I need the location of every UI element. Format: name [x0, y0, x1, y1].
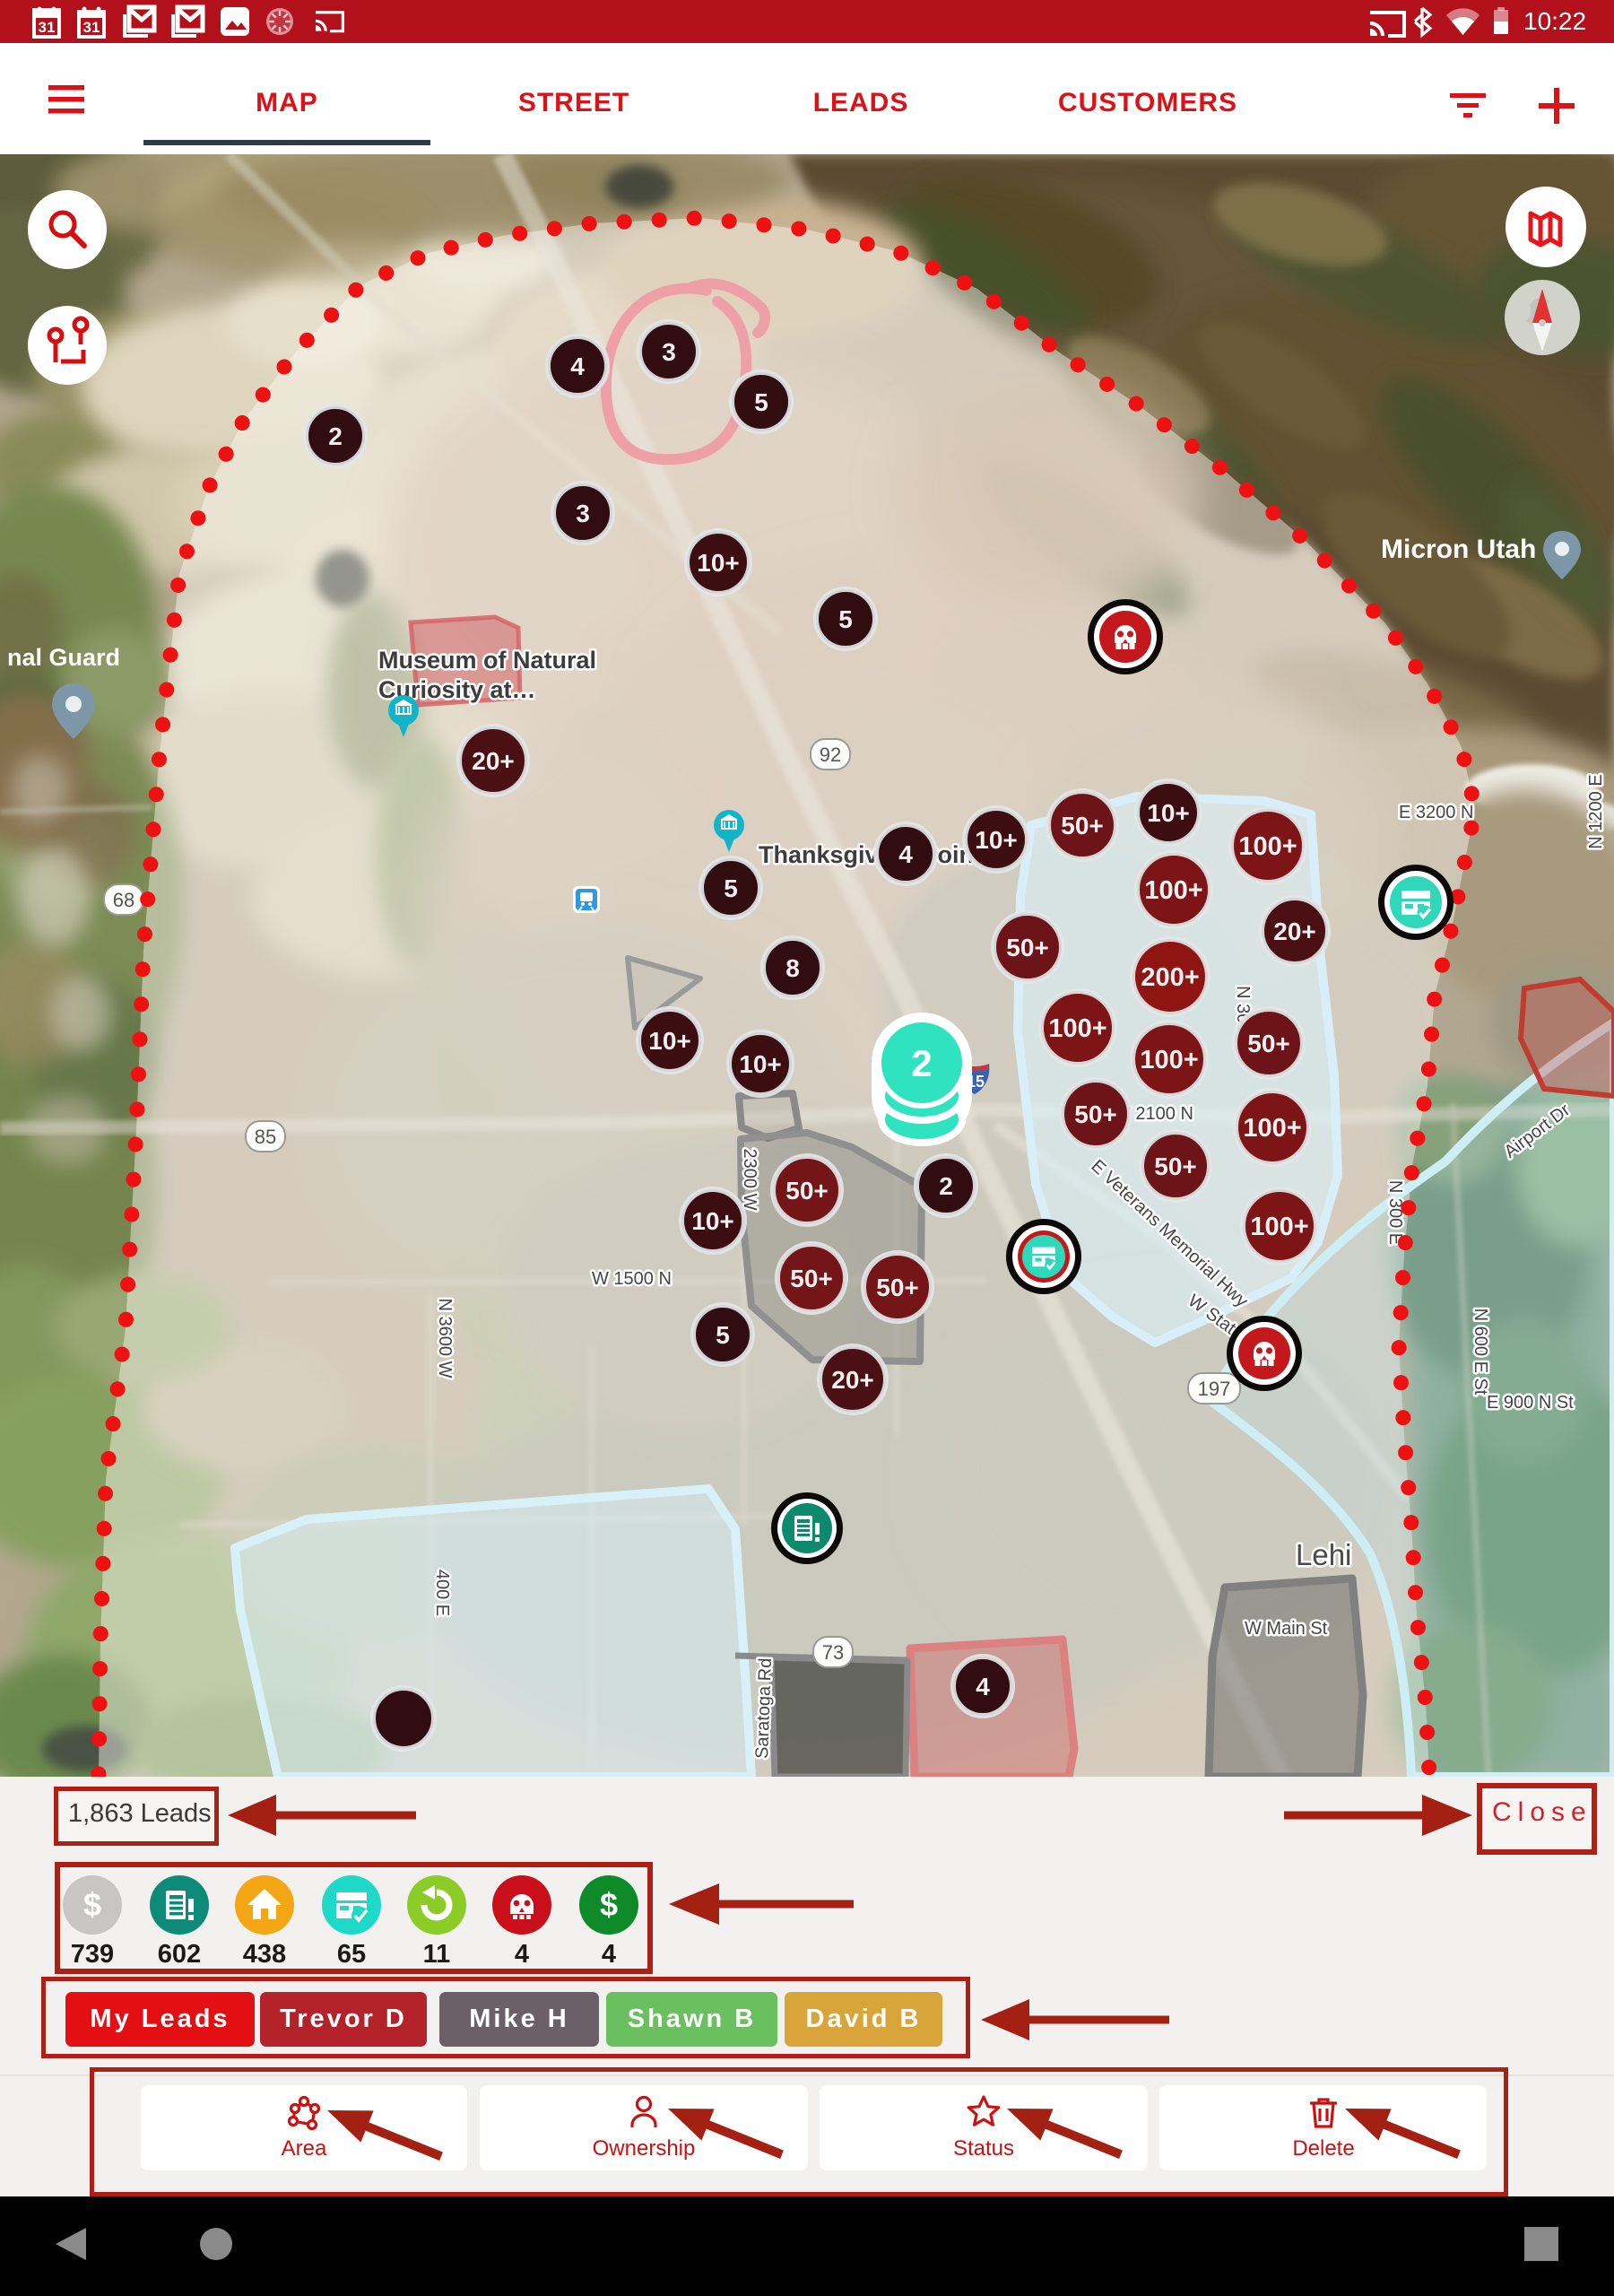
svg-text:68: 68 — [113, 889, 134, 911]
svg-text:20+: 20+ — [472, 747, 515, 775]
svg-text:602: 602 — [158, 1940, 201, 1969]
svg-text:400 E: 400 E — [432, 1570, 452, 1616]
svg-text:31: 31 — [83, 19, 100, 36]
svg-text:50+: 50+ — [1154, 1152, 1197, 1180]
svg-text:5: 5 — [724, 874, 738, 902]
svg-text:Ownership: Ownership — [593, 2136, 696, 2161]
svg-text:5: 5 — [754, 388, 768, 416]
svg-text:50+: 50+ — [876, 1274, 919, 1301]
svg-text:4: 4 — [570, 352, 585, 380]
svg-text:5: 5 — [716, 1321, 730, 1349]
svg-text:N 300 E: N 300 E — [1385, 1180, 1405, 1245]
svg-text:100+: 100+ — [1144, 876, 1202, 905]
svg-text:2300 W: 2300 W — [740, 1149, 759, 1211]
svg-text:N 1200 E: N 1200 E — [1586, 774, 1606, 848]
svg-text:10+: 10+ — [739, 1050, 782, 1078]
svg-text:Saratoga Rd: Saratoga Rd — [752, 1657, 776, 1759]
svg-text:8: 8 — [785, 954, 800, 982]
svg-text:E 900 N St: E 900 N St — [1487, 1393, 1574, 1413]
svg-text:4: 4 — [515, 1940, 529, 1969]
svg-text:65: 65 — [337, 1940, 366, 1969]
svg-text:200+: 200+ — [1141, 963, 1199, 992]
svg-text:Status: Status — [953, 2136, 1014, 2161]
svg-text:10+: 10+ — [697, 549, 740, 577]
svg-text:11: 11 — [423, 1940, 451, 1969]
svg-text:10+: 10+ — [648, 1027, 691, 1055]
svg-text:2: 2 — [911, 1042, 932, 1084]
svg-text:Museum of Natural: Museum of Natural — [378, 647, 596, 674]
svg-text:5: 5 — [838, 605, 853, 633]
svg-text:739: 739 — [71, 1940, 114, 1969]
svg-text:Thanksgiving Point: Thanksgiving Point — [759, 841, 982, 868]
svg-text:2: 2 — [939, 1172, 953, 1200]
svg-text:100+: 100+ — [1048, 1014, 1106, 1043]
svg-text:50+: 50+ — [1061, 812, 1104, 839]
svg-text:50+: 50+ — [785, 1177, 829, 1205]
svg-text:20+: 20+ — [1273, 918, 1316, 945]
svg-text:2: 2 — [328, 422, 343, 450]
svg-text:197: 197 — [1198, 1378, 1231, 1400]
svg-text:4: 4 — [602, 1940, 616, 1969]
svg-text:100+: 100+ — [1250, 1213, 1308, 1241]
svg-text:4: 4 — [976, 1673, 990, 1700]
svg-text:100+: 100+ — [1238, 832, 1297, 861]
svg-text:W Main St: W Main St — [1245, 1619, 1328, 1639]
svg-text:10:22: 10:22 — [1523, 7, 1586, 35]
svg-text:85: 85 — [255, 1126, 276, 1148]
svg-text:20+: 20+ — [831, 1366, 874, 1394]
svg-text:10+: 10+ — [1147, 799, 1190, 827]
svg-text:N 600 E St: N 600 E St — [1471, 1309, 1490, 1396]
svg-text:4: 4 — [898, 840, 913, 868]
svg-text:438: 438 — [243, 1940, 286, 1969]
svg-text:3: 3 — [662, 338, 676, 366]
svg-text:73: 73 — [822, 1641, 844, 1664]
svg-text:10+: 10+ — [691, 1207, 734, 1235]
svg-text:nal Guard: nal Guard — [7, 644, 120, 671]
svg-text:E 3200 N: E 3200 N — [1399, 803, 1473, 822]
svg-text:3: 3 — [576, 500, 590, 527]
svg-text:$: $ — [600, 1886, 618, 1923]
svg-text:31: 31 — [39, 19, 56, 36]
svg-text:Area: Area — [282, 2136, 327, 2161]
svg-text:50+: 50+ — [1006, 934, 1049, 961]
svg-text:50+: 50+ — [1074, 1100, 1117, 1128]
svg-text:100+: 100+ — [1140, 1046, 1198, 1074]
svg-text:$: $ — [83, 1886, 101, 1923]
svg-text:50+: 50+ — [1247, 1030, 1290, 1057]
svg-text:W 1500 N: W 1500 N — [592, 1269, 672, 1289]
svg-text:Lehi: Lehi — [1296, 1538, 1351, 1571]
svg-text:50+: 50+ — [790, 1265, 833, 1292]
svg-text:N 3600 W: N 3600 W — [435, 1299, 455, 1378]
svg-text:Delete: Delete — [1292, 2136, 1354, 2161]
svg-text:10+: 10+ — [975, 826, 1018, 854]
svg-text:Micron Utah: Micron Utah — [1381, 535, 1536, 564]
svg-text:100+: 100+ — [1243, 1114, 1301, 1143]
svg-text:92: 92 — [820, 744, 841, 766]
